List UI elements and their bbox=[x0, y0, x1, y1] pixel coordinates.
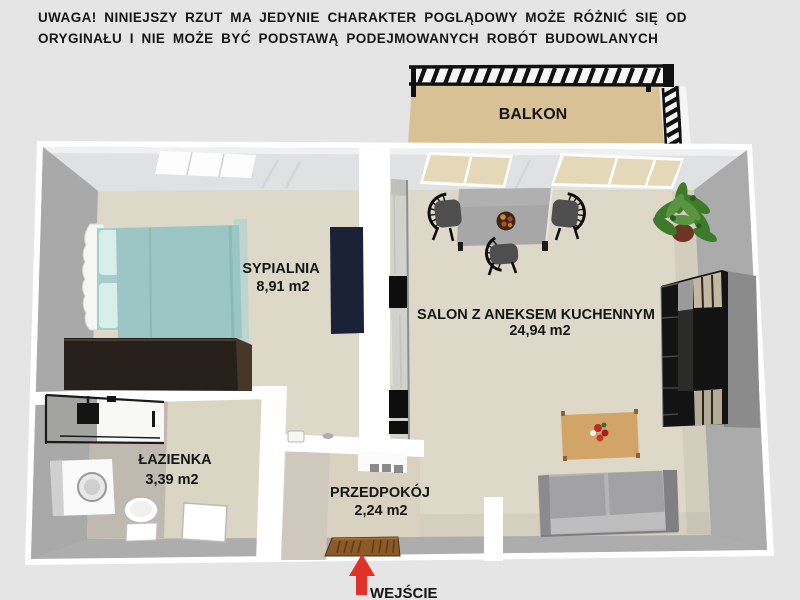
svg-text:SALON Z ANEKSEM KUCHENNYM: SALON Z ANEKSEM KUCHENNYM bbox=[417, 307, 655, 323]
svg-text:8,91 m2: 8,91 m2 bbox=[256, 279, 309, 295]
svg-text:3,39 m2: 3,39 m2 bbox=[145, 472, 198, 488]
svg-text:ORYGINAŁU I NIE MOŻE BYĆ PODST: ORYGINAŁU I NIE MOŻE BYĆ PODSTAWĄ PODEJM… bbox=[38, 31, 658, 46]
svg-text:PRZEDPOKÓJ: PRZEDPOKÓJ bbox=[330, 483, 430, 501]
svg-text:WEJŚCIE: WEJŚCIE bbox=[370, 584, 438, 600]
svg-text:SYPIALNIA: SYPIALNIA bbox=[242, 261, 320, 277]
svg-text:24,94 m2: 24,94 m2 bbox=[509, 323, 570, 339]
svg-text:ŁAZIENKA: ŁAZIENKA bbox=[138, 452, 212, 468]
svg-text:2,24 m2: 2,24 m2 bbox=[354, 503, 407, 519]
svg-text:BALKON: BALKON bbox=[499, 106, 567, 123]
svg-text:UWAGA! NINIEJSZY RZUT MA JEDYN: UWAGA! NINIEJSZY RZUT MA JEDYNIE CHARAKT… bbox=[38, 10, 687, 25]
